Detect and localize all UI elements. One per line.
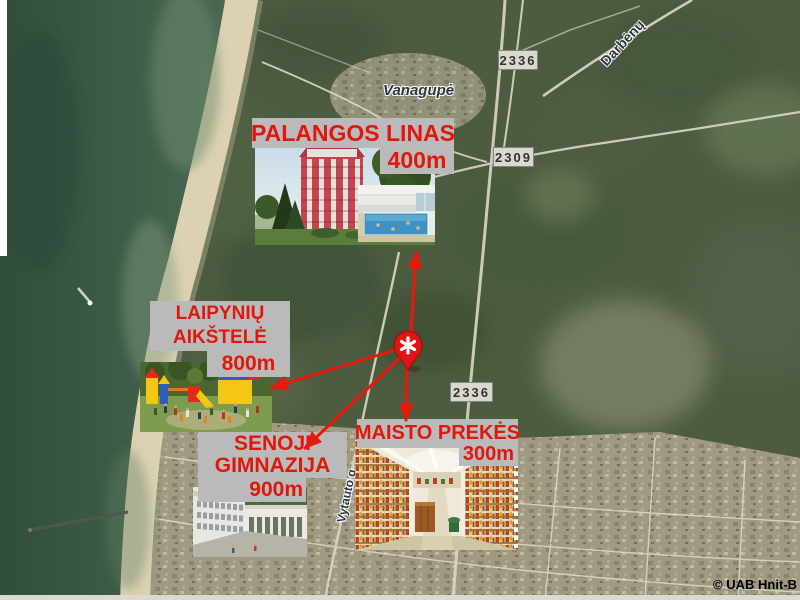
distance-laipyniu-aikstele: 800m xyxy=(207,351,290,377)
copyright-notice: © UAB Hnit-B xyxy=(713,577,797,592)
poi-label-line2: AIKŠTELĖ xyxy=(173,326,267,350)
distance-palangos-linas: 400m xyxy=(380,146,454,174)
pool-photo xyxy=(358,185,435,242)
poi-label-line1: LAIPYNIŲ xyxy=(176,302,265,326)
poi-label-line1: SENOJI xyxy=(234,433,311,455)
road-sign-2336-north: 2336 xyxy=(498,50,538,70)
distance-senoji-gimnazija: 900m xyxy=(198,478,306,502)
page-left-margin xyxy=(0,0,7,256)
satellite-map-view: PALANGOS LINAS 400m LAIPYNIŲ AIKŠTELĖ 80… xyxy=(0,0,800,600)
road-sign-2336-south: 2336 xyxy=(450,382,493,402)
place-label-vanagupe: Vanagupė xyxy=(383,82,454,99)
poi-label-palangos-linas: PALANGOS LINAS xyxy=(252,118,454,148)
distance-maisto-prekes: 300m xyxy=(459,443,518,466)
page-bottom-margin xyxy=(0,595,800,600)
poi-label-line2: GIMNAZIJA xyxy=(215,455,331,477)
poi-label-senoji-gimnazija: SENOJI GIMNAZIJA xyxy=(198,432,347,478)
hotel-building xyxy=(299,147,365,233)
poi-label-laipyniu-aikstele: LAIPYNIŲ AIKŠTELĖ xyxy=(150,301,290,351)
road-sign-2309: 2309 xyxy=(493,147,534,167)
